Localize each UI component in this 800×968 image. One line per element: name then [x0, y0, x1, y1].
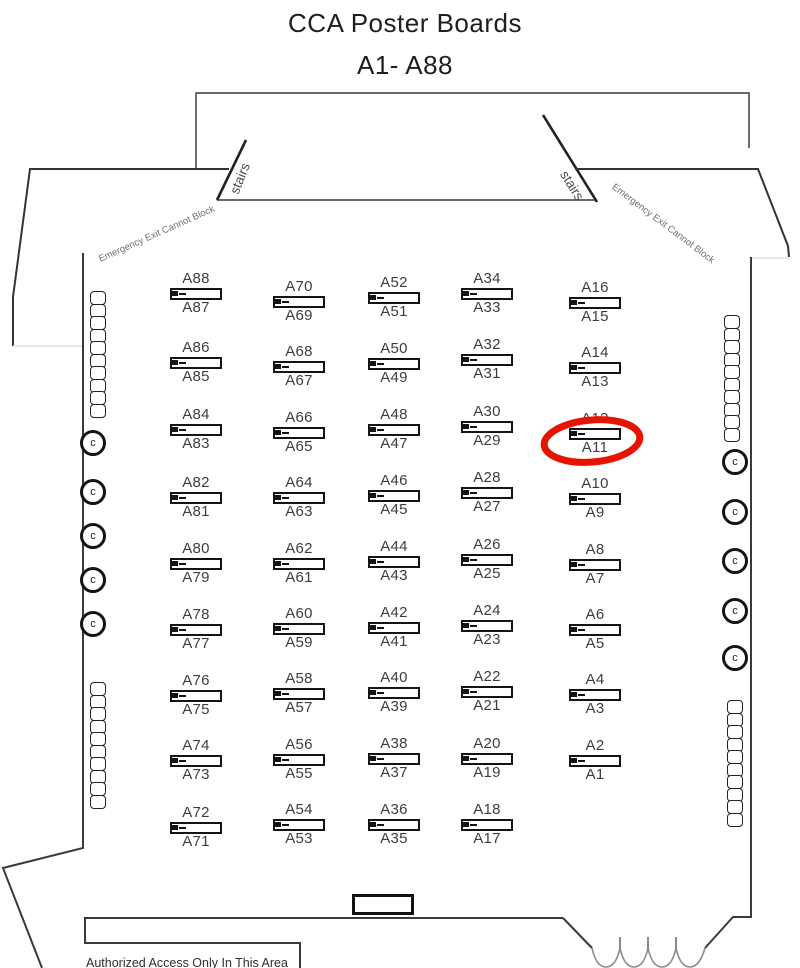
board-bottom-label: A45 [360, 503, 428, 517]
board-top-label: A60 [265, 607, 333, 621]
board-bottom-label: A43 [360, 569, 428, 583]
board-bottom-label: A69 [265, 309, 333, 323]
poster-board-icon [170, 357, 222, 369]
poster-board-icon [368, 622, 420, 634]
board-bottom-label: A67 [265, 374, 333, 388]
board-bottom-label: A3 [561, 702, 629, 716]
poster-board-icon [273, 296, 325, 308]
board-top-label: A52 [360, 276, 428, 290]
poster-board-icon [170, 755, 222, 767]
chair-icon [90, 795, 106, 809]
board-bottom-label: A35 [360, 832, 428, 846]
board-top-label: A88 [162, 272, 230, 286]
poster-board-icon [368, 556, 420, 568]
board-top-label: A64 [265, 476, 333, 490]
chair-icon [90, 707, 106, 721]
board-top-label: A76 [162, 674, 230, 688]
poster-board-A76-A75: A76A75 [162, 674, 230, 717]
poster-board-A88-A87: A88A87 [162, 272, 230, 315]
board-top-label: A4 [561, 673, 629, 687]
board-top-label: A40 [360, 671, 428, 685]
board-top-label: A56 [265, 738, 333, 752]
board-bottom-label: A71 [162, 835, 230, 849]
board-bottom-label: A53 [265, 832, 333, 846]
board-bottom-label: A27 [453, 500, 521, 514]
board-top-label: A70 [265, 280, 333, 294]
board-top-label: A20 [453, 737, 521, 751]
poster-board-icon [273, 427, 325, 439]
board-bottom-label: A9 [561, 506, 629, 520]
board-bottom-label: A55 [265, 767, 333, 781]
board-top-label: A44 [360, 540, 428, 554]
board-top-label: A48 [360, 408, 428, 422]
floor-outlet-icon: c [80, 523, 106, 549]
board-bottom-label: A25 [453, 567, 521, 581]
poster-board-A68-A67: A68A67 [265, 345, 333, 388]
chair-icon [724, 315, 740, 329]
poster-board-A46-A45: A46A45 [360, 474, 428, 517]
board-top-label: A58 [265, 672, 333, 686]
poster-board-A86-A85: A86A85 [162, 341, 230, 384]
floorplan-page: CCA Poster Boards A1- A88 stairs stairs … [0, 0, 800, 968]
board-top-label: A36 [360, 803, 428, 817]
floor-outlet-icon: c [722, 645, 748, 671]
board-bottom-label: A37 [360, 766, 428, 780]
poster-board-icon [170, 558, 222, 570]
board-bottom-label: A17 [453, 832, 521, 846]
chair-icon [724, 340, 740, 354]
poster-board-A38-A37: A38A37 [360, 737, 428, 780]
poster-board-icon [569, 493, 621, 505]
outlet-letter: c [90, 487, 96, 498]
poster-board-icon [273, 623, 325, 635]
poster-board-icon [569, 624, 621, 636]
board-top-label: A30 [453, 405, 521, 419]
board-bottom-label: A57 [265, 701, 333, 715]
poster-board-A34-A33: A34A33 [453, 272, 521, 315]
outlet-letter: c [90, 438, 96, 449]
chair-icon [90, 391, 106, 405]
board-bottom-label: A5 [561, 637, 629, 651]
poster-board-A84-A83: A84A83 [162, 408, 230, 451]
poster-board-A70-A69: A70A69 [265, 280, 333, 323]
board-top-label: A32 [453, 338, 521, 352]
board-bottom-label: A31 [453, 367, 521, 381]
stage-outline [196, 93, 749, 169]
page-title: CCA Poster Boards [0, 8, 800, 39]
poster-board-A4-A3: A4A3 [561, 673, 629, 716]
emergency-exit-label-left: Emergency Exit Cannot Block [97, 204, 215, 264]
board-bottom-label: A79 [162, 571, 230, 585]
board-bottom-label: A33 [453, 301, 521, 315]
floor-outlet-icon: c [80, 479, 106, 505]
board-bottom-label: A51 [360, 305, 428, 319]
board-bottom-label: A59 [265, 636, 333, 650]
poster-board-A66-A65: A66A65 [265, 411, 333, 454]
poster-board-icon [170, 822, 222, 834]
floor-outlet-icon: c [722, 548, 748, 574]
board-top-label: A78 [162, 608, 230, 622]
board-bottom-label: A47 [360, 437, 428, 451]
board-top-label: A80 [162, 542, 230, 556]
poster-board-A20-A19: A20A19 [453, 737, 521, 780]
curtain-ticks [620, 937, 676, 948]
poster-board-A52-A51: A52A51 [360, 276, 428, 319]
poster-board-icon [170, 690, 222, 702]
stacked-chairs [90, 291, 106, 418]
stairs-label-right: stairs [555, 164, 590, 208]
poster-board-icon [273, 688, 325, 700]
poster-board-A50-A49: A50A49 [360, 342, 428, 385]
poster-board-icon [170, 424, 222, 436]
board-bottom-label: A77 [162, 637, 230, 651]
board-bottom-label: A11 [561, 441, 629, 455]
poster-board-A44-A43: A44A43 [360, 540, 428, 583]
board-top-label: A22 [453, 670, 521, 684]
board-top-label: A46 [360, 474, 428, 488]
poster-board-A56-A55: A56A55 [265, 738, 333, 781]
board-top-label: A6 [561, 608, 629, 622]
poster-board-A72-A71: A72A71 [162, 806, 230, 849]
board-top-label: A16 [561, 281, 629, 295]
outlet-letter: c [732, 556, 738, 567]
board-top-label: A86 [162, 341, 230, 355]
board-top-label: A10 [561, 477, 629, 491]
board-bottom-label: A29 [453, 434, 521, 448]
board-top-label: A2 [561, 739, 629, 753]
poster-board-icon [461, 819, 513, 831]
outlet-letter: c [732, 606, 738, 617]
poster-board-A78-A77: A78A77 [162, 608, 230, 651]
poster-board-A16-A15: A16A15 [561, 281, 629, 324]
board-bottom-label: A61 [265, 571, 333, 585]
board-bottom-label: A83 [162, 437, 230, 451]
poster-board-A48-A47: A48A47 [360, 408, 428, 451]
poster-board-icon [368, 753, 420, 765]
chair-icon [90, 757, 106, 771]
board-bottom-label: A75 [162, 703, 230, 717]
poster-board-icon [461, 354, 513, 366]
outlet-letter: c [90, 619, 96, 630]
outlet-letter: c [90, 531, 96, 542]
board-top-label: A18 [453, 803, 521, 817]
chair-icon [727, 725, 743, 739]
poster-board-icon [461, 288, 513, 300]
board-bottom-label: A7 [561, 572, 629, 586]
wall-bottom-right-diagonal [563, 918, 592, 948]
poster-board-A22-A21: A22A21 [453, 670, 521, 713]
poster-board-icon [368, 490, 420, 502]
board-top-label: A72 [162, 806, 230, 820]
poster-board-A8-A7: A8A7 [561, 543, 629, 586]
poster-board-icon [368, 687, 420, 699]
chair-icon [727, 813, 743, 827]
poster-board-icon [273, 558, 325, 570]
stacked-chairs [724, 315, 740, 442]
outlet-letter: c [90, 575, 96, 586]
poster-board-A24-A23: A24A23 [453, 604, 521, 647]
chair-icon [727, 775, 743, 789]
poster-board-A12-A11: A12A11 [561, 412, 629, 455]
board-top-label: A24 [453, 604, 521, 618]
chair-icon [90, 341, 106, 355]
poster-board-A36-A35: A36A35 [360, 803, 428, 846]
board-bottom-label: A21 [453, 699, 521, 713]
poster-board-icon [273, 754, 325, 766]
poster-board-icon [273, 492, 325, 504]
floor-outlet-icon: c [722, 598, 748, 624]
poster-board-A28-A27: A28A27 [453, 471, 521, 514]
board-bottom-label: A73 [162, 768, 230, 782]
poster-board-icon [368, 424, 420, 436]
chair-icon [724, 428, 740, 442]
poster-board-icon [461, 554, 513, 566]
chair-icon [724, 390, 740, 404]
board-bottom-label: A1 [561, 768, 629, 782]
poster-board-icon [569, 755, 621, 767]
board-top-label: A42 [360, 606, 428, 620]
board-top-label: A50 [360, 342, 428, 356]
poster-board-icon [569, 297, 621, 309]
poster-board-A74-A73: A74A73 [162, 739, 230, 782]
wall-top-left [13, 169, 229, 346]
poster-board-A40-A39: A40A39 [360, 671, 428, 714]
chair-icon [90, 682, 106, 696]
board-top-label: A68 [265, 345, 333, 359]
poster-board-A10-A9: A10A9 [561, 477, 629, 520]
chair-icon [727, 800, 743, 814]
board-bottom-label: A49 [360, 371, 428, 385]
board-top-label: A66 [265, 411, 333, 425]
poster-board-icon [569, 428, 621, 440]
poster-board-icon [569, 362, 621, 374]
chair-icon [90, 291, 106, 305]
board-top-label: A14 [561, 346, 629, 360]
poster-board-A64-A63: A64A63 [265, 476, 333, 519]
chair-icon [90, 782, 106, 796]
poster-board-icon [170, 624, 222, 636]
board-bottom-label: A39 [360, 700, 428, 714]
chair-icon [724, 365, 740, 379]
board-top-label: A84 [162, 408, 230, 422]
board-bottom-label: A87 [162, 301, 230, 315]
poster-board-icon [170, 492, 222, 504]
board-bottom-label: A63 [265, 505, 333, 519]
poster-board-icon [461, 620, 513, 632]
chair-icon [90, 316, 106, 330]
chair-icon [727, 750, 743, 764]
poster-board-icon [368, 819, 420, 831]
board-top-label: A26 [453, 538, 521, 552]
board-top-label: A74 [162, 739, 230, 753]
poster-board-A80-A79: A80A79 [162, 542, 230, 585]
board-top-label: A12 [561, 412, 629, 426]
board-bottom-label: A81 [162, 505, 230, 519]
poster-board-A32-A31: A32A31 [453, 338, 521, 381]
board-top-label: A28 [453, 471, 521, 485]
poster-board-icon [273, 819, 325, 831]
poster-board-A6-A5: A6A5 [561, 608, 629, 651]
poster-board-icon [569, 689, 621, 701]
board-top-label: A54 [265, 803, 333, 817]
curtain-symbol [592, 948, 705, 967]
poster-board-A58-A57: A58A57 [265, 672, 333, 715]
chair-icon [90, 732, 106, 746]
poster-board-A14-A13: A14A13 [561, 346, 629, 389]
board-bottom-label: A65 [265, 440, 333, 454]
poster-board-A26-A25: A26A25 [453, 538, 521, 581]
podium [352, 894, 414, 915]
poster-board-icon [461, 686, 513, 698]
poster-board-A62-A61: A62A61 [265, 542, 333, 585]
poster-board-A2-A1: A2A1 [561, 739, 629, 782]
floor-outlet-icon: c [80, 567, 106, 593]
poster-board-A18-A17: A18A17 [453, 803, 521, 846]
poster-board-A60-A59: A60A59 [265, 607, 333, 650]
poster-board-icon [461, 487, 513, 499]
poster-board-A30-A29: A30A29 [453, 405, 521, 448]
board-top-label: A34 [453, 272, 521, 286]
board-top-label: A82 [162, 476, 230, 490]
board-top-label: A62 [265, 542, 333, 556]
authorized-area-label: Authorized Access Only In This Area [86, 956, 288, 968]
poster-board-A42-A41: A42A41 [360, 606, 428, 649]
poster-board-A54-A53: A54A53 [265, 803, 333, 846]
poster-board-icon [461, 753, 513, 765]
stacked-chairs [90, 682, 106, 809]
poster-board-icon [273, 361, 325, 373]
floor-outlet-icon: c [80, 430, 106, 456]
board-bottom-label: A15 [561, 310, 629, 324]
poster-board-icon [170, 288, 222, 300]
floor-outlet-icon: c [80, 611, 106, 637]
wall-left [3, 253, 83, 968]
poster-board-icon [368, 358, 420, 370]
poster-board-icon [368, 292, 420, 304]
board-bottom-label: A85 [162, 370, 230, 384]
chair-icon [724, 415, 740, 429]
board-bottom-label: A23 [453, 633, 521, 647]
poster-board-icon [569, 559, 621, 571]
outlet-letter: c [732, 653, 738, 664]
board-top-label: A8 [561, 543, 629, 557]
chair-icon [90, 404, 106, 418]
stairs-label-left: stairs [225, 156, 255, 201]
board-bottom-label: A13 [561, 375, 629, 389]
chair-icon [90, 366, 106, 380]
poster-board-A82-A81: A82A81 [162, 476, 230, 519]
page-subtitle: A1- A88 [0, 50, 800, 81]
stacked-chairs [727, 700, 743, 827]
outlet-letter: c [732, 457, 738, 468]
chair-icon [727, 700, 743, 714]
board-top-label: A38 [360, 737, 428, 751]
poster-board-icon [461, 421, 513, 433]
board-bottom-label: A19 [453, 766, 521, 780]
board-bottom-label: A41 [360, 635, 428, 649]
outlet-letter: c [732, 507, 738, 518]
floor-outlet-icon: c [722, 449, 748, 475]
floor-outlet-icon: c [722, 499, 748, 525]
emergency-exit-label-right: Emergency Exit Cannot Block [610, 182, 735, 280]
